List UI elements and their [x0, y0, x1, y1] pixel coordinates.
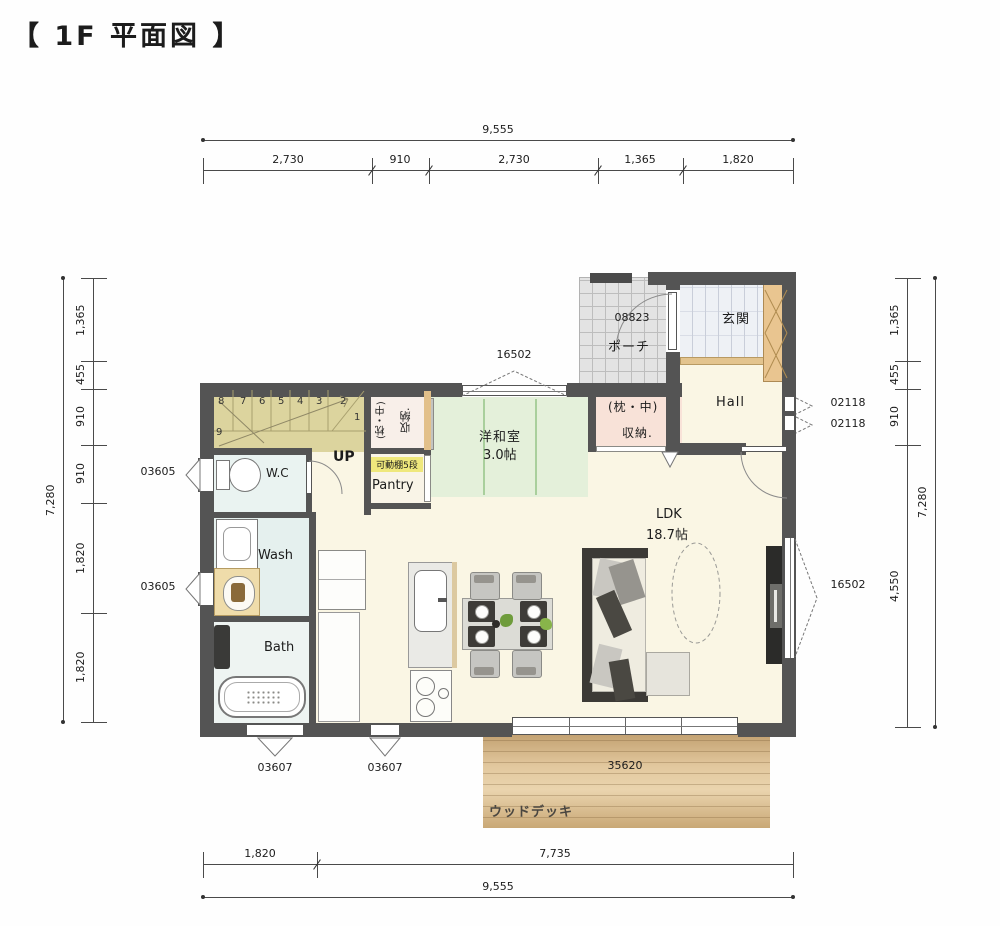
- dim-tick: [895, 278, 921, 279]
- kitchen-cabinet: [318, 612, 360, 722]
- dim-line: [203, 897, 793, 898]
- label-up: UP: [333, 449, 355, 465]
- label-wc: W.C: [266, 466, 289, 480]
- label-03607-left: 03607: [253, 761, 297, 774]
- label-tatami-name: 洋和室: [479, 426, 521, 445]
- wall: [680, 443, 746, 455]
- washing-machine: [216, 519, 258, 569]
- dim-left-seg-4: 910: [74, 449, 87, 499]
- pantry-door: [424, 455, 431, 502]
- label-03605-lower: 03605: [136, 580, 180, 593]
- dim-tick: [895, 445, 921, 446]
- label-tatami-size: 3.0帖: [483, 444, 517, 463]
- dining-chair: [470, 650, 500, 678]
- window-03607-right: [370, 724, 400, 736]
- dim-line: [935, 278, 936, 727]
- burner-small: [438, 688, 449, 699]
- dim-tick: [203, 852, 204, 878]
- closet-hall-slidedoor: [596, 446, 666, 452]
- dim-bottom-seg-1: 1,820: [220, 847, 300, 860]
- shower-fixture: [214, 625, 230, 669]
- label-16502-right: 16502: [826, 578, 870, 591]
- dim-top-seg-1: 2,730: [248, 153, 328, 166]
- chair-back: [516, 667, 536, 675]
- wall: [588, 389, 596, 452]
- dim-tick: [793, 852, 794, 878]
- tv-screen-face: [774, 590, 777, 622]
- plate: [475, 630, 489, 644]
- stair-number: 5: [278, 396, 284, 407]
- dim-tick: [81, 503, 107, 504]
- window-35620-slider: [512, 717, 738, 735]
- dim-dot: [933, 276, 937, 280]
- plate: [527, 630, 541, 644]
- entry-door-leaf: [668, 292, 677, 350]
- dim-right-total: 7,280: [916, 472, 929, 532]
- dim-tick: [81, 613, 107, 614]
- dim-dot: [201, 138, 205, 142]
- dining-chair: [512, 650, 542, 678]
- dim-tick: [203, 158, 204, 184]
- window-03605-lower: [198, 572, 214, 606]
- dim-dot: [61, 276, 65, 280]
- burner: [416, 698, 435, 717]
- wall: [200, 383, 214, 737]
- plate: [527, 605, 541, 619]
- chair-back: [516, 575, 536, 583]
- label-closet-stairs-2: 収納.: [398, 394, 414, 446]
- dim-left-seg-1: 1,365: [74, 290, 87, 350]
- label-16502-top: 16502: [492, 348, 536, 361]
- dim-line: [203, 140, 793, 141]
- wall: [200, 512, 316, 518]
- label-pantry: Pantry: [372, 478, 414, 493]
- wall: [364, 503, 431, 509]
- dim-top-seg-4: 1,365: [600, 153, 680, 166]
- label-03607-right: 03607: [363, 761, 407, 774]
- dim-line: [63, 278, 64, 722]
- porch-post: [590, 273, 632, 283]
- page-title: 【 1F 平面図 】: [12, 14, 242, 53]
- burner: [416, 677, 435, 696]
- floor-plan-canvas: 【 1F 平面図 】: [0, 0, 1000, 926]
- bathtub-texture: [246, 690, 280, 706]
- dim-left-seg-6: 1,820: [74, 637, 87, 697]
- label-closet-stairs-1: (枕・中): [374, 392, 389, 448]
- wc-door-leaf: [306, 461, 312, 494]
- dim-line: [907, 278, 908, 727]
- label-closet-hall-1: (枕・中): [608, 398, 658, 415]
- dim-bottom-total: 9,555: [458, 880, 538, 893]
- window-16502-right: [784, 537, 795, 659]
- dim-right-seg-3: 910: [888, 392, 901, 442]
- dim-tick: [81, 445, 107, 446]
- dim-tick: [81, 278, 107, 279]
- dim-dot: [791, 138, 795, 142]
- dim-line: [203, 864, 793, 865]
- stair-number: 7: [240, 396, 246, 407]
- window-02118-lower: [784, 415, 795, 431]
- toilet-bowl: [229, 458, 261, 492]
- vanity-basin: [231, 583, 245, 602]
- bathtub: [218, 676, 306, 718]
- wall: [782, 272, 796, 737]
- stair-number: 2: [340, 396, 346, 407]
- dim-right-seg-1: 1,365: [888, 290, 901, 350]
- dim-top-seg-5: 1,820: [698, 153, 778, 166]
- porch-floor: [580, 278, 666, 384]
- label-pantry-shelf: 可動棚5段: [371, 457, 423, 472]
- placemat: [468, 601, 495, 622]
- table-bottle: [492, 620, 500, 628]
- table-plant: [540, 618, 552, 630]
- label-hall: Hall: [716, 395, 745, 410]
- wall: [666, 350, 680, 455]
- dim-tick: [793, 158, 794, 184]
- toilet-tank: [216, 460, 230, 490]
- window-03605-upper: [198, 458, 214, 492]
- label-porch: ポーチ: [608, 336, 650, 355]
- dim-tick: [81, 722, 107, 723]
- label-ldk-size: 18.7帖: [646, 524, 688, 543]
- fridge-door-split: [319, 579, 365, 580]
- dining-chair: [470, 572, 500, 600]
- dim-left-seg-3: 910: [74, 392, 87, 442]
- stair-number: 8: [218, 396, 224, 407]
- label-bath: Bath: [264, 640, 294, 655]
- dim-top-total: 9,555: [458, 123, 538, 136]
- label-entrance: 玄関: [722, 308, 750, 327]
- sofa-chaise: [646, 652, 690, 696]
- stair-number: 1: [354, 412, 360, 423]
- chair-back: [474, 667, 494, 675]
- stove: [410, 670, 452, 722]
- label-ldk-name: LDK: [656, 507, 682, 522]
- wall: [306, 494, 312, 514]
- stair-number: 6: [259, 396, 265, 407]
- vanity-counter: [214, 568, 260, 616]
- dim-dot: [791, 895, 795, 899]
- dim-dot: [933, 725, 937, 729]
- washer-drum: [223, 527, 251, 561]
- dim-right-seg-4: 4,550: [888, 556, 901, 616]
- stair-number: 3: [316, 396, 322, 407]
- kitchen-faucet: [438, 598, 447, 602]
- refrigerator: [318, 550, 366, 610]
- dim-line: [93, 278, 94, 722]
- wall: [567, 383, 682, 397]
- window-02118-upper: [784, 396, 795, 412]
- wall: [200, 448, 312, 455]
- label-02118-upper: 02118: [826, 396, 870, 409]
- stair-number: 9: [216, 427, 222, 438]
- genkan-step: [680, 357, 764, 365]
- wall: [200, 616, 316, 622]
- dim-dot: [201, 895, 205, 899]
- label-wash: Wash: [258, 548, 293, 563]
- label-02118-lower: 02118: [826, 417, 870, 430]
- slider-track: [513, 726, 737, 727]
- tv-screen: [770, 584, 782, 628]
- wall: [666, 272, 680, 292]
- label-deck: ウッドデッキ: [489, 801, 573, 820]
- dim-line: [203, 170, 793, 171]
- dim-dot: [61, 720, 65, 724]
- window-midline: [463, 391, 566, 392]
- tatami-divider-2: [535, 399, 537, 495]
- plate: [475, 605, 489, 619]
- dim-left-total: 7,280: [44, 470, 57, 530]
- placemat: [468, 626, 495, 647]
- wall: [364, 448, 431, 454]
- label-03605-upper: 03605: [136, 465, 180, 478]
- dining-chair: [512, 572, 542, 600]
- window-03607-left: [246, 724, 304, 736]
- label-closet-hall-2: 収納.: [622, 424, 653, 441]
- dim-tick: [895, 727, 921, 728]
- dim-left-seg-5: 1,820: [74, 528, 87, 588]
- stair-number: 4: [297, 396, 303, 407]
- closet-folding-door: [424, 391, 431, 450]
- wall: [309, 512, 316, 723]
- wall: [200, 383, 462, 397]
- dim-top-seg-2: 910: [360, 153, 440, 166]
- window-16502-top: [462, 385, 567, 396]
- chair-back: [474, 575, 494, 583]
- dim-top-seg-3: 2,730: [474, 153, 554, 166]
- hall-door-leaf: [741, 446, 787, 452]
- counter-edge: [452, 562, 457, 668]
- window-midline: [790, 538, 791, 658]
- label-35620: 35620: [600, 759, 650, 772]
- label-door-08823: 08823: [610, 311, 654, 324]
- dim-bottom-seg-2: 7,735: [515, 847, 595, 860]
